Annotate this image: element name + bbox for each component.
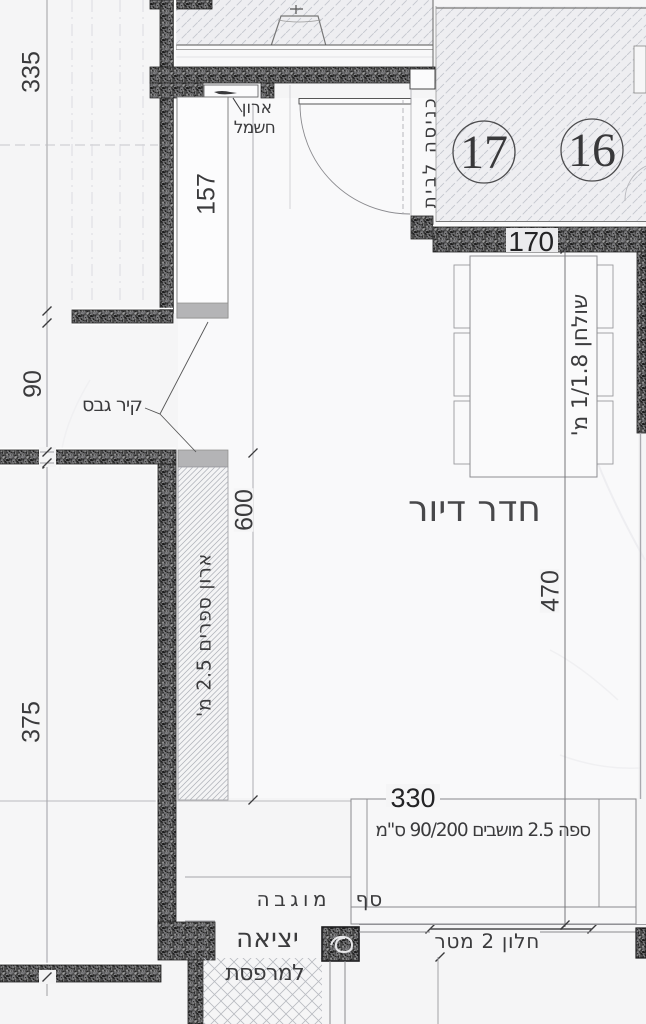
svg-text:330: 330 xyxy=(390,783,435,813)
svg-text:375: 375 xyxy=(18,701,46,743)
svg-text:600: 600 xyxy=(231,489,259,531)
svg-text:170: 170 xyxy=(508,226,553,257)
svg-text:90: 90 xyxy=(19,370,47,398)
svg-text:17: 17 xyxy=(460,126,508,179)
svg-text:16: 16 xyxy=(568,124,616,177)
svg-text:157: 157 xyxy=(193,173,221,215)
svg-text:335: 335 xyxy=(18,51,46,93)
svg-text:470: 470 xyxy=(537,570,565,612)
